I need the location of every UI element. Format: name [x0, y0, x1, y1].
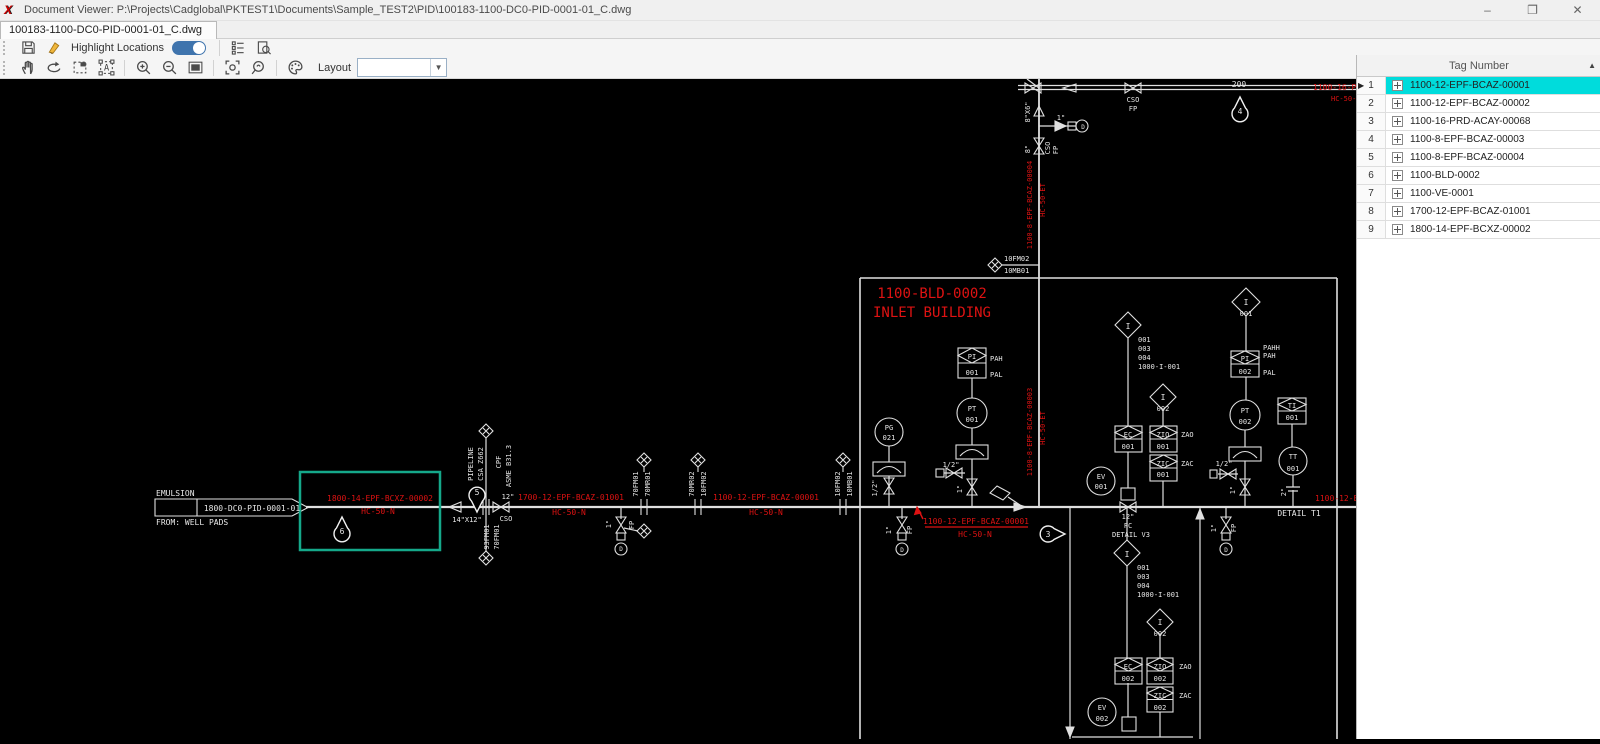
document-magnifier-icon — [256, 40, 272, 55]
svg-text:1100-12-EPF-BCAZ-00001: 1100-12-EPF-BCAZ-00001 — [713, 493, 819, 502]
tag-number-text: 1800-14-EPF-BCXZ-00002 — [1410, 224, 1531, 235]
svg-text:PAHH: PAHH — [1263, 344, 1280, 352]
tag-row[interactable]: 91800-14-EPF-BCXZ-00002 — [1357, 221, 1600, 239]
svg-text:PAH: PAH — [990, 355, 1003, 363]
svg-text:PT: PT — [1241, 407, 1250, 415]
svg-text:002: 002 — [1154, 675, 1167, 683]
tag-cell[interactable]: 1700-12-EPF-BCAZ-01001 — [1386, 203, 1600, 220]
svg-text:004: 004 — [1137, 582, 1150, 590]
tag-number-text: 1100-8-EPF-BCAZ-00003 — [1410, 134, 1524, 145]
svg-text:ZIC: ZIC — [1157, 460, 1170, 468]
zoom-previous-button[interactable] — [246, 59, 270, 77]
zoom-to-location-button[interactable] — [252, 39, 276, 57]
svg-text:CPF: CPF — [495, 456, 503, 469]
svg-text:CSO: CSO — [1127, 96, 1140, 104]
svg-text:4: 4 — [1238, 107, 1243, 116]
tag-cell[interactable]: 1800-14-EPF-BCXZ-00002 — [1386, 221, 1600, 238]
palette-button[interactable] — [283, 59, 307, 77]
toggle-knob — [193, 42, 205, 54]
pan-button[interactable] — [16, 59, 40, 77]
svg-text:1": 1" — [1229, 486, 1237, 494]
tag-row[interactable]: 21100-12-EPF-BCAZ-00002 — [1357, 95, 1600, 113]
expand-plus-icon[interactable] — [1392, 224, 1403, 235]
svg-text:CSO: CSO — [1044, 142, 1052, 155]
svg-text:001: 001 — [1137, 564, 1150, 572]
expand-plus-icon[interactable] — [1392, 116, 1403, 127]
svg-text:HC-50-N: HC-50-N — [749, 508, 783, 517]
text-box-icon: A — [98, 59, 115, 76]
svg-text:12": 12" — [502, 493, 515, 501]
tag-number-panel: Tag Number ▲ ▶11100-12-EPF-BCAZ-00001211… — [1356, 55, 1600, 739]
svg-text:1": 1" — [1210, 524, 1218, 532]
window-select-button[interactable] — [68, 59, 92, 77]
svg-text:FROM: WELL PADS: FROM: WELL PADS — [156, 518, 228, 527]
svg-text:I: I — [1158, 618, 1163, 627]
svg-text:001: 001 — [1157, 443, 1170, 451]
svg-text:1100-12-EPF-BCAZ-00002: 1100-12-EPF-BCAZ-00002 — [1315, 494, 1356, 503]
svg-text:004: 004 — [1138, 354, 1151, 362]
highlight-toggle[interactable] — [172, 41, 206, 55]
zoom-out-button[interactable] — [157, 59, 181, 77]
svg-text:FC: FC — [1124, 522, 1132, 530]
svg-text:3: 3 — [1046, 530, 1051, 539]
svg-text:FP: FP — [1052, 146, 1060, 154]
zoom-window-icon — [187, 59, 204, 76]
tag-row[interactable]: 81700-12-EPF-BCAZ-01001 — [1357, 203, 1600, 221]
row-number[interactable]: 9 — [1357, 221, 1386, 238]
svg-text:1100-8-EPF-BCAZ-00003: 1100-8-EPF-BCAZ-00003 — [1026, 388, 1034, 477]
minimize-button[interactable]: – — [1465, 3, 1510, 17]
restore-button[interactable]: ❐ — [1510, 3, 1555, 17]
svg-text:1100-8-EPF-BCAZ-00004: 1100-8-EPF-BCAZ-00004 — [1026, 161, 1034, 250]
svg-text:1700-12-EPF-BCAZ-01001: 1700-12-EPF-BCAZ-01001 — [518, 493, 624, 502]
svg-text:1000-I-001: 1000-I-001 — [1137, 591, 1179, 599]
tag-cell[interactable]: 1100-8-EPF-BCAZ-00003 — [1386, 131, 1600, 148]
svg-text:001: 001 — [1138, 336, 1151, 344]
svg-text:HC-50-ET: HC-50-ET — [1039, 410, 1047, 445]
tag-number-text: 1100-VE-0001 — [1410, 188, 1474, 199]
palette-icon — [287, 59, 304, 76]
tag-number-text: 1100-12-EPF-BCAZ-00001 — [1410, 80, 1530, 91]
list-icon — [230, 40, 246, 55]
row-number[interactable]: 3 — [1357, 113, 1386, 130]
svg-text:1/2": 1/2" — [1216, 460, 1233, 468]
save-button[interactable] — [16, 39, 40, 57]
svg-text:70MR02: 70MR02 — [688, 471, 696, 496]
svg-text:1100-16-PRD-ACAY-00068: 1100-16-PRD-ACAY-00068 — [1313, 83, 1356, 92]
svg-text:1/2": 1/2" — [871, 480, 879, 497]
svg-text:002: 002 — [1122, 675, 1135, 683]
row-number[interactable]: 5 — [1357, 149, 1386, 166]
svg-text:002: 002 — [1096, 715, 1109, 723]
tag-cell[interactable]: 1100-8-EPF-BCAZ-00004 — [1386, 149, 1600, 166]
svg-text:PI: PI — [1241, 355, 1249, 363]
location-pin-3 — [1040, 526, 1065, 542]
tag-row[interactable]: 41100-8-EPF-BCAZ-00003 — [1357, 131, 1600, 149]
expand-plus-icon[interactable] — [1392, 98, 1403, 109]
svg-text:1100-12-EPF-BCAZ-00001: 1100-12-EPF-BCAZ-00001 — [923, 517, 1029, 526]
svg-text:PAL: PAL — [1263, 369, 1276, 377]
svg-text:PT: PT — [968, 405, 977, 413]
svg-text:1/2": 1/2" — [943, 461, 960, 469]
marquee-icon — [72, 59, 89, 76]
svg-text:ZAC: ZAC — [1181, 460, 1194, 468]
highlight-pen-button[interactable] — [42, 39, 66, 57]
separator — [213, 60, 214, 76]
tag-cell[interactable]: 1100-16-PRD-ACAY-00068 — [1386, 113, 1600, 130]
svg-text:HC-50-ET: HC-50-ET — [1039, 182, 1047, 217]
row-number[interactable]: 6 — [1357, 167, 1386, 184]
svg-text:PI: PI — [968, 353, 976, 361]
svg-text:8": 8" — [1024, 145, 1032, 153]
svg-text:10MB01: 10MB01 — [1004, 267, 1029, 275]
pipe-lines — [306, 78, 1356, 739]
svg-text:DETAIL T1: DETAIL T1 — [1277, 509, 1321, 518]
svg-text:002: 002 — [1157, 405, 1170, 413]
svg-text:14"X12": 14"X12" — [452, 516, 482, 524]
valve-symbols — [449, 83, 1250, 737]
svg-text:70FM01: 70FM01 — [493, 524, 501, 549]
svg-text:10FM02: 10FM02 — [834, 471, 842, 496]
tab-bar: 100183-1100-DC0-PID-0001-01_C.dwg — [0, 20, 1600, 39]
svg-text:EV: EV — [1098, 704, 1107, 712]
svg-text:TI: TI — [1288, 402, 1296, 410]
svg-text:200: 200 — [1232, 80, 1247, 89]
expand-plus-icon[interactable] — [1392, 188, 1403, 199]
svg-text:1": 1" — [885, 526, 893, 534]
svg-text:I: I — [1161, 393, 1166, 402]
svg-text:I: I — [1244, 298, 1249, 307]
tag-list: ▶11100-12-EPF-BCAZ-0000121100-12-EPF-BCA… — [1357, 77, 1600, 239]
tag-number-text: 1100-12-EPF-BCAZ-00002 — [1410, 98, 1530, 109]
svg-text:1800-DC0-PID-0001-01: 1800-DC0-PID-0001-01 — [204, 504, 301, 513]
svg-text:70FM01: 70FM01 — [632, 471, 640, 496]
text-select-button[interactable]: A — [94, 59, 118, 77]
zoom-previous-icon — [250, 59, 267, 76]
svg-text:EC: EC — [1124, 663, 1132, 671]
svg-text:8"X6": 8"X6" — [1024, 101, 1032, 122]
svg-text:021: 021 — [883, 434, 896, 442]
tag-number-text: 1100-8-EPF-BCAZ-00004 — [1410, 152, 1524, 163]
svg-text:TT: TT — [1289, 453, 1298, 461]
svg-text:EV: EV — [1097, 473, 1106, 481]
cad-labels: EMULSION1800-DC0-PID-0001-01FROM: WELL P… — [156, 80, 1356, 723]
svg-text:1": 1" — [1057, 114, 1065, 122]
close-button[interactable]: ✕ — [1555, 3, 1600, 17]
tag-cell[interactable]: 1100-12-EPF-BCAZ-00002 — [1386, 95, 1600, 112]
svg-text:PG: PG — [885, 424, 893, 432]
svg-text:HC-50-N: HC-50-N — [361, 507, 395, 516]
svg-text:HC-50-N: HC-50-N — [552, 508, 586, 517]
tag-row[interactable]: ▶11100-12-EPF-BCAZ-00001 — [1357, 77, 1600, 95]
drawing-canvas[interactable]: EMULSION1800-DC0-PID-0001-01FROM: WELL P… — [0, 78, 1356, 739]
svg-text:1": 1" — [956, 485, 964, 493]
svg-text:1": 1" — [605, 520, 613, 528]
tag-cell[interactable]: 1100-BLD-0002 — [1386, 167, 1600, 184]
tag-row[interactable]: 31100-16-PRD-ACAY-00068 — [1357, 113, 1600, 131]
svg-text:003: 003 — [1137, 573, 1150, 581]
expand-plus-icon[interactable] — [1392, 134, 1403, 145]
zoom-extents-icon — [224, 59, 241, 76]
current-row-arrow-icon: ▶ — [1358, 81, 1364, 90]
svg-text:10FM02: 10FM02 — [700, 471, 708, 496]
layout-dropdown[interactable]: ▼ — [357, 58, 447, 77]
svg-text:HC-50-ET: HC-50-ET — [1331, 95, 1356, 103]
svg-text:PAL: PAL — [990, 371, 1003, 379]
svg-text:10MB01: 10MB01 — [846, 471, 854, 496]
app-icon: X — [4, 3, 18, 17]
separator — [276, 60, 277, 76]
instrument-symbols — [155, 120, 1307, 731]
zoom-in-button[interactable] — [131, 59, 155, 77]
svg-text:HC-50-N: HC-50-N — [958, 530, 992, 539]
row-number[interactable]: 2 — [1357, 95, 1386, 112]
sort-ascending-icon[interactable]: ▲ — [1588, 61, 1596, 70]
svg-text:ZAO: ZAO — [1179, 663, 1192, 671]
svg-text:003: 003 — [1138, 345, 1151, 353]
zoom-window-button[interactable] — [183, 59, 207, 77]
svg-text:001: 001 — [1286, 414, 1299, 422]
svg-text:ZIC: ZIC — [1154, 692, 1167, 700]
zoom-in-icon — [135, 59, 152, 76]
svg-text:FP: FP — [1129, 105, 1137, 113]
toolbar-grip[interactable] — [3, 61, 10, 75]
chevron-down-icon: ▼ — [430, 59, 446, 76]
orbit-arrow-icon — [46, 59, 63, 76]
svg-text:001: 001 — [966, 416, 979, 424]
svg-text:1000-I-001: 1000-I-001 — [1138, 363, 1180, 371]
tag-number-text: 1100-16-PRD-ACAY-00068 — [1410, 116, 1530, 127]
save-icon — [21, 40, 36, 55]
tag-panel-header[interactable]: Tag Number ▲ — [1357, 55, 1600, 77]
svg-text:001: 001 — [1122, 443, 1135, 451]
svg-text:001: 001 — [1157, 471, 1170, 479]
separator — [219, 40, 220, 56]
window-title: Document Viewer: P:\Projects\Cadglobal\P… — [24, 4, 631, 16]
svg-text:PAH: PAH — [1263, 352, 1276, 360]
highlighter-icon — [46, 40, 62, 55]
svg-text:93FM01: 93FM01 — [483, 524, 491, 549]
zoom-extents-button[interactable] — [220, 59, 244, 77]
svg-text:001: 001 — [1240, 310, 1253, 318]
svg-text:INLET BUILDING: INLET BUILDING — [873, 305, 991, 321]
svg-text:A: A — [103, 64, 108, 74]
title-bar: X Document Viewer: P:\Projects\Cadglobal… — [0, 0, 1600, 21]
svg-text:DETAIL V3: DETAIL V3 — [1112, 531, 1150, 539]
separator — [124, 60, 125, 76]
svg-text:D: D — [1224, 547, 1228, 554]
svg-text:CSO: CSO — [500, 515, 513, 523]
svg-text:D: D — [619, 546, 623, 553]
svg-text:001: 001 — [966, 369, 979, 377]
document-tab[interactable]: 100183-1100-DC0-PID-0001-01_C.dwg — [0, 21, 217, 39]
svg-text:D: D — [900, 547, 904, 554]
svg-text:D: D — [1081, 124, 1085, 131]
svg-text:I: I — [1125, 550, 1130, 559]
svg-text:002: 002 — [1239, 418, 1252, 426]
svg-text:EMULSION: EMULSION — [156, 489, 195, 498]
svg-text:5: 5 — [475, 488, 480, 497]
zoom-out-icon — [161, 59, 178, 76]
expand-plus-icon[interactable] — [1392, 80, 1403, 91]
svg-text:002: 002 — [1154, 630, 1167, 638]
svg-text:6: 6 — [340, 527, 345, 536]
svg-text:70MR01: 70MR01 — [644, 471, 652, 496]
svg-text:CSA Z662: CSA Z662 — [477, 447, 485, 481]
location-list-button[interactable] — [226, 39, 250, 57]
tag-cell[interactable]: 1100-12-EPF-BCAZ-00001 — [1386, 77, 1600, 94]
svg-text:FP: FP — [1230, 524, 1238, 532]
row-number[interactable]: 8 — [1357, 203, 1386, 220]
svg-text:ASME B31.3: ASME B31.3 — [505, 445, 513, 487]
orbit-button[interactable] — [42, 59, 66, 77]
expand-plus-icon[interactable] — [1392, 152, 1403, 163]
svg-text:001: 001 — [1287, 465, 1300, 473]
tag-row[interactable]: 51100-8-EPF-BCAZ-00004 — [1357, 149, 1600, 167]
tag-number-text: 1700-12-EPF-BCAZ-01001 — [1410, 206, 1531, 217]
svg-text:ZIO: ZIO — [1154, 663, 1167, 671]
toolbar-grip[interactable] — [3, 41, 10, 55]
svg-text:12": 12" — [1122, 513, 1135, 521]
row-number[interactable]: 7 — [1357, 185, 1386, 202]
svg-text:002: 002 — [1239, 368, 1252, 376]
highlight-locations-label: Highlight Locations — [71, 42, 164, 54]
tag-number-column-header[interactable]: Tag Number — [1357, 60, 1600, 72]
tag-number-text: 1100-BLD-0002 — [1410, 170, 1480, 181]
svg-text:FP: FP — [906, 526, 914, 534]
pid-drawing: EMULSION1800-DC0-PID-0001-01FROM: WELL P… — [0, 78, 1356, 739]
svg-text:001: 001 — [1095, 483, 1108, 491]
hand-icon — [20, 59, 37, 76]
svg-text:PIPELINE: PIPELINE — [467, 447, 475, 481]
layout-label: Layout — [318, 62, 351, 74]
svg-text:10FM02: 10FM02 — [1004, 255, 1029, 263]
svg-text:EC: EC — [1124, 431, 1132, 439]
expand-plus-icon[interactable] — [1392, 206, 1403, 217]
svg-text:2": 2" — [1280, 488, 1288, 496]
row-number[interactable]: ▶1 — [1357, 77, 1386, 94]
svg-text:ZAC: ZAC — [1179, 692, 1192, 700]
svg-text:ZIO: ZIO — [1157, 431, 1170, 439]
svg-text:I: I — [1126, 322, 1131, 331]
svg-text:1800-14-EPF-BCXZ-00002: 1800-14-EPF-BCXZ-00002 — [327, 494, 433, 503]
svg-text:1100-BLD-0002: 1100-BLD-0002 — [877, 286, 987, 302]
tag-row[interactable]: 61100-BLD-0002 — [1357, 167, 1600, 185]
svg-text:FP: FP — [628, 521, 636, 529]
tag-row[interactable]: 71100-VE-0001 — [1357, 185, 1600, 203]
row-number[interactable]: 4 — [1357, 131, 1386, 148]
tag-cell[interactable]: 1100-VE-0001 — [1386, 185, 1600, 202]
svg-text:002: 002 — [1154, 704, 1167, 712]
svg-text:ZAO: ZAO — [1181, 431, 1194, 439]
expand-plus-icon[interactable] — [1392, 170, 1403, 181]
